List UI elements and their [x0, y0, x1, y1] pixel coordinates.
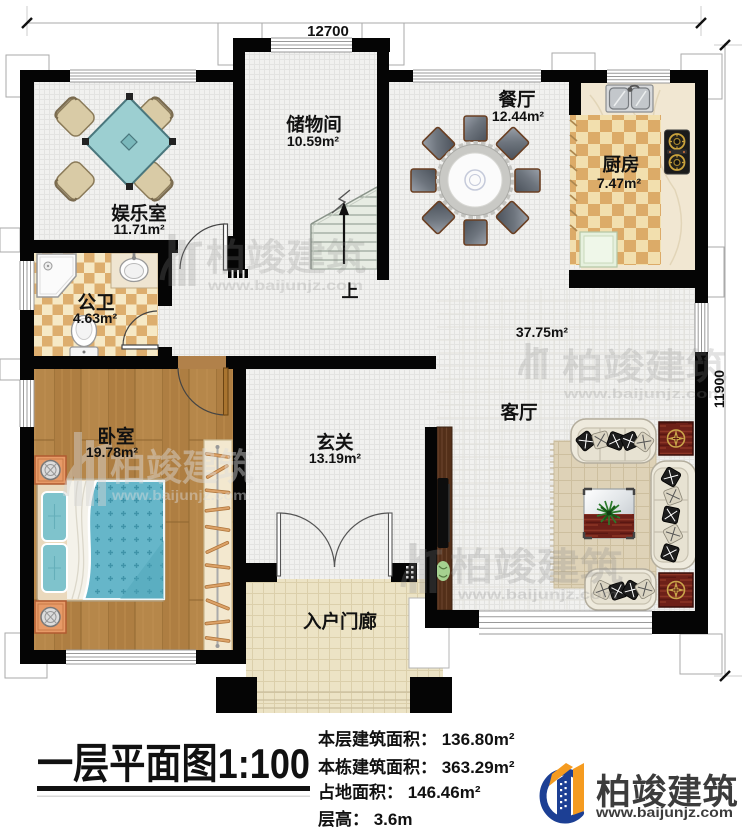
svg-text:储物间: 储物间	[285, 114, 342, 135]
svg-text:客厅: 客厅	[500, 402, 537, 423]
svg-text:柏竣建筑: 柏竣建筑	[562, 346, 727, 387]
svg-text:上: 上	[342, 282, 359, 301]
svg-text:12700: 12700	[307, 23, 349, 40]
svg-text:餐厅: 餐厅	[497, 89, 535, 110]
svg-text:www.baijunjz.com: www.baijunjz.com	[457, 587, 618, 602]
svg-text:入户门廊: 入户门廊	[303, 611, 377, 632]
svg-text:13.19m²: 13.19m²	[309, 450, 361, 466]
svg-text:柏竣建筑: 柏竣建筑	[450, 547, 623, 589]
svg-text:www.baijunjz.com: www.baijunjz.com	[595, 805, 733, 820]
svg-text:19.78m²: 19.78m²	[86, 444, 138, 460]
svg-text:厨房: 厨房	[602, 154, 639, 175]
svg-text:4.63m²: 4.63m²	[73, 310, 118, 326]
svg-text:10.59m²: 10.59m²	[287, 133, 339, 149]
svg-text:一层平面图1:100: 一层平面图1:100	[37, 740, 310, 787]
svg-text:7.47m²: 7.47m²	[597, 175, 642, 191]
svg-text:www.baijunjz.com: www.baijunjz.com	[111, 488, 247, 503]
svg-text:占地面积： 146.46m²: 占地面积： 146.46m²	[318, 782, 481, 802]
svg-text:37.75m²: 37.75m²	[516, 324, 568, 340]
svg-text:本层建筑面积： 136.80m²: 本层建筑面积： 136.80m²	[318, 729, 515, 749]
svg-text:本栋建筑面积： 363.29m²: 本栋建筑面积： 363.29m²	[318, 757, 515, 777]
svg-text:11900: 11900	[711, 370, 727, 408]
svg-text:层高： 3.6m: 层高： 3.6m	[318, 809, 412, 829]
svg-text:www.baijunjz.com: www.baijunjz.com	[207, 278, 363, 293]
svg-text:www.baijunjz.com: www.baijunjz.com	[563, 387, 724, 401]
svg-text:柏竣建筑: 柏竣建筑	[206, 236, 366, 278]
svg-text:12.44m²: 12.44m²	[492, 108, 544, 124]
svg-text:11.71m²: 11.71m²	[113, 221, 165, 237]
